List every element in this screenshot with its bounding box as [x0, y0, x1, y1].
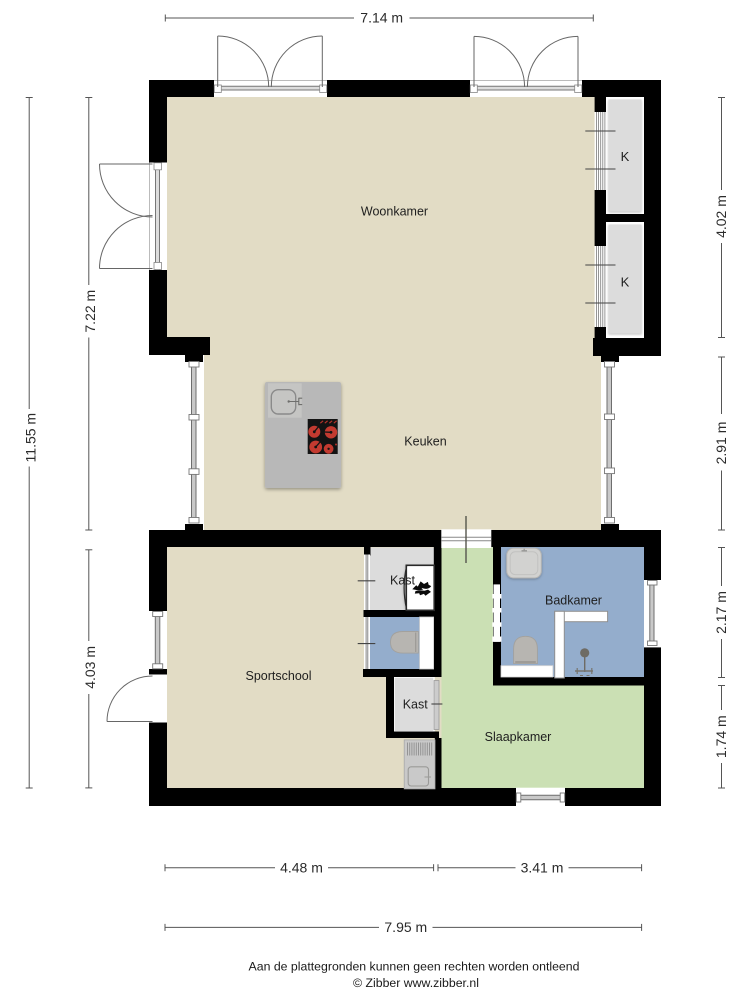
- svg-text:1.74 m: 1.74 m: [713, 715, 729, 758]
- svg-text:Badkamer: Badkamer: [545, 594, 602, 608]
- svg-text:4.02 m: 4.02 m: [713, 195, 729, 238]
- svg-text:2.91 m: 2.91 m: [713, 422, 729, 465]
- svg-text:11.55 m: 11.55 m: [22, 413, 38, 463]
- svg-text:Sportschool: Sportschool: [245, 669, 311, 683]
- svg-text:3.41 m: 3.41 m: [521, 859, 564, 875]
- svg-text:7.95 m: 7.95 m: [384, 919, 427, 935]
- svg-text:K: K: [621, 149, 630, 164]
- svg-text:4.48 m: 4.48 m: [280, 859, 323, 875]
- svg-text:7.14 m: 7.14 m: [360, 10, 403, 26]
- svg-text:2.17 m: 2.17 m: [713, 591, 729, 634]
- svg-text:Aan de plattegronden kunnen ge: Aan de plattegronden kunnen geen rechten…: [249, 960, 580, 974]
- svg-text:7.22 m: 7.22 m: [82, 290, 98, 333]
- svg-text:Keuken: Keuken: [404, 435, 446, 449]
- svg-text:Woonkamer: Woonkamer: [361, 205, 428, 219]
- svg-text:Kast: Kast: [403, 698, 429, 712]
- svg-text:Kast: Kast: [390, 573, 416, 587]
- svg-text:© Zibber www.zibber.nl: © Zibber www.zibber.nl: [353, 976, 479, 990]
- svg-text:Slaapkamer: Slaapkamer: [485, 730, 552, 744]
- svg-text:4.03 m: 4.03 m: [82, 646, 98, 689]
- svg-text:K: K: [621, 274, 630, 289]
